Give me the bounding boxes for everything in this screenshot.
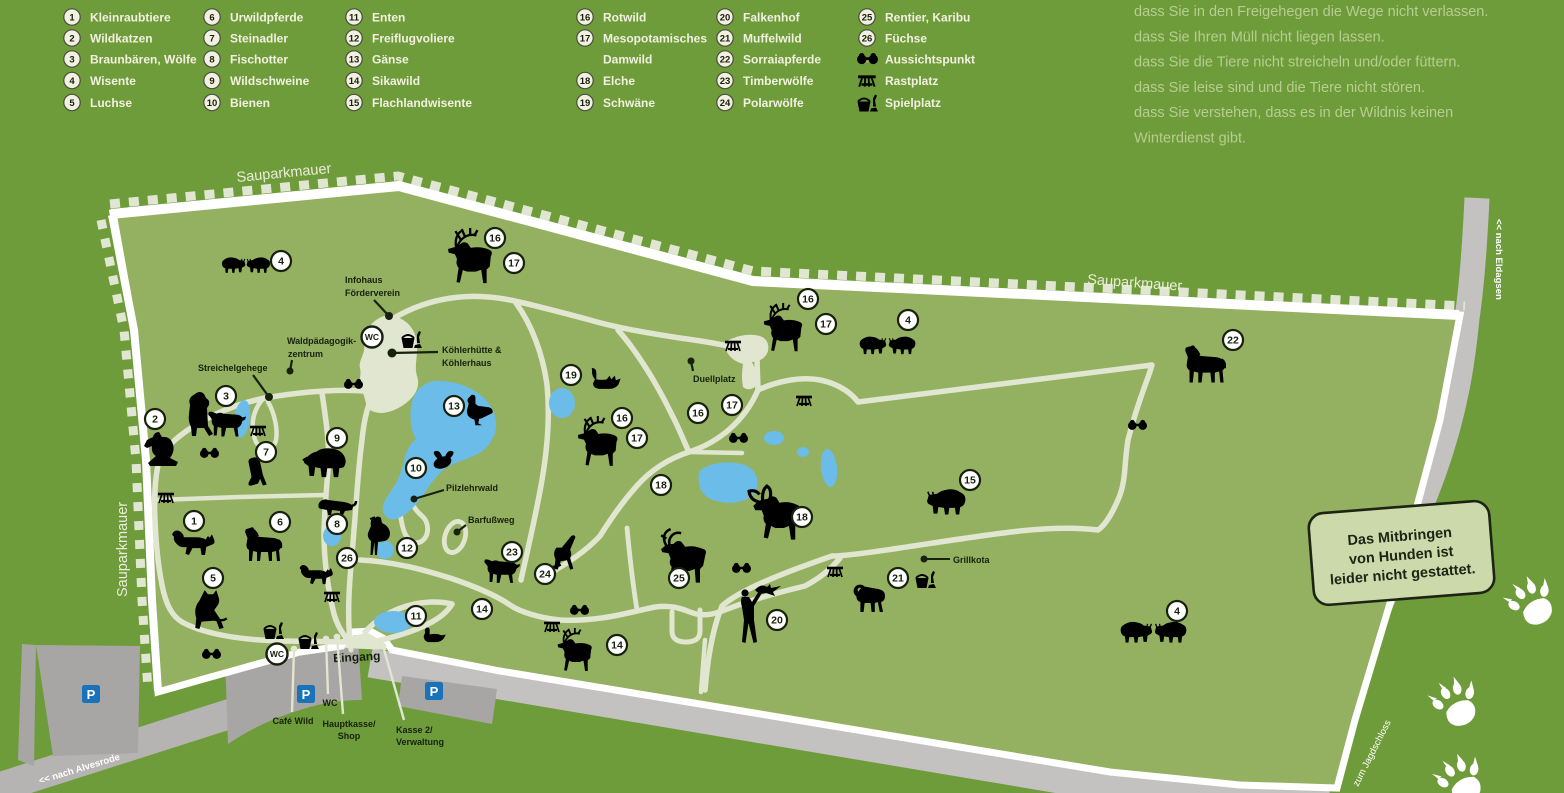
svg-text:Waldpädagogik-: Waldpädagogik- — [287, 336, 356, 346]
svg-text:Bienen: Bienen — [230, 96, 270, 110]
svg-text:15: 15 — [349, 98, 360, 109]
svg-text:4: 4 — [278, 256, 284, 268]
svg-text:dass Sie in den Freigehegen di: dass Sie in den Freigehegen die Wege nic… — [1134, 4, 1488, 20]
svg-text:Wildkatzen: Wildkatzen — [90, 32, 153, 46]
svg-text:P: P — [430, 684, 439, 699]
svg-text:Köhlerhaus: Köhlerhaus — [442, 358, 492, 368]
svg-text:Kasse 2/: Kasse 2/ — [396, 725, 433, 735]
svg-text:Grillkota: Grillkota — [953, 555, 991, 565]
svg-text:13: 13 — [349, 54, 360, 65]
svg-text:Polarwölfe: Polarwölfe — [743, 96, 804, 110]
svg-text:Luchse: Luchse — [90, 96, 132, 110]
svg-text:Schwäne: Schwäne — [603, 96, 655, 110]
svg-text:WC: WC — [270, 649, 284, 659]
svg-text:14: 14 — [349, 76, 360, 87]
svg-text:Verwaltung: Verwaltung — [396, 737, 444, 747]
svg-text:16: 16 — [580, 12, 591, 23]
svg-text:dass Sie verstehen, dass es in: dass Sie verstehen, dass es in der Wildn… — [1134, 105, 1453, 121]
svg-text:Förderverein: Förderverein — [345, 288, 400, 298]
svg-text:17: 17 — [508, 258, 520, 270]
svg-text:Steinadler: Steinadler — [230, 32, 288, 46]
svg-text:21: 21 — [720, 33, 731, 44]
svg-text:20: 20 — [720, 12, 731, 23]
svg-text:Wisente: Wisente — [90, 74, 136, 88]
svg-text:6: 6 — [277, 517, 283, 529]
svg-text:14: 14 — [476, 604, 488, 616]
svg-text:Rastplatz: Rastplatz — [885, 74, 938, 88]
svg-text:9: 9 — [209, 76, 214, 87]
svg-text:dass Sie Ihren Müll nicht lieg: dass Sie Ihren Müll nicht liegen lassen. — [1134, 29, 1385, 45]
svg-text:5: 5 — [210, 573, 216, 585]
svg-text:Sorraiapferde: Sorraiapferde — [743, 53, 821, 67]
svg-text:P: P — [87, 687, 96, 702]
svg-text:Damwild: Damwild — [603, 53, 652, 67]
svg-text:Streichelgehege: Streichelgehege — [198, 363, 268, 373]
svg-text:4: 4 — [905, 315, 911, 327]
svg-text:7: 7 — [263, 447, 269, 459]
svg-text:4: 4 — [1174, 606, 1180, 618]
svg-text:17: 17 — [820, 319, 832, 331]
svg-text:1: 1 — [69, 12, 75, 23]
svg-text:11: 11 — [349, 12, 360, 23]
svg-text:Winterdienst gibt.: Winterdienst gibt. — [1134, 131, 1246, 147]
svg-text:16: 16 — [489, 233, 501, 245]
svg-text:Spielplatz: Spielplatz — [885, 96, 941, 110]
svg-text:16: 16 — [616, 413, 628, 425]
svg-text:zentrum: zentrum — [288, 349, 323, 359]
svg-text:Sauparkmauer: Sauparkmauer — [115, 502, 131, 597]
svg-text:22: 22 — [720, 54, 731, 65]
svg-text:Gänse: Gänse — [372, 53, 409, 67]
svg-text:Köhlerhütte &: Köhlerhütte & — [442, 345, 502, 355]
svg-text:15: 15 — [964, 475, 976, 487]
svg-text:Enten: Enten — [372, 11, 405, 25]
svg-text:25: 25 — [673, 573, 685, 585]
svg-text:dass Sie die Tiere nicht strei: dass Sie die Tiere nicht streicheln und/… — [1134, 55, 1460, 71]
svg-text:Fischotter: Fischotter — [230, 53, 288, 67]
svg-text:Barfußweg: Barfußweg — [468, 515, 515, 525]
svg-text:16: 16 — [802, 294, 814, 306]
svg-text:Flachlandwisente: Flachlandwisente — [372, 96, 472, 110]
svg-text:22: 22 — [1227, 335, 1239, 347]
svg-text:24: 24 — [720, 98, 731, 109]
svg-text:13: 13 — [448, 401, 460, 413]
svg-text:10: 10 — [410, 463, 422, 475]
svg-text:Sikawild: Sikawild — [372, 74, 420, 88]
svg-text:9: 9 — [334, 433, 340, 445]
svg-text:26: 26 — [862, 33, 873, 44]
svg-text:Urwildpferde: Urwildpferde — [230, 11, 304, 25]
svg-text:2: 2 — [69, 33, 74, 44]
svg-text:WC: WC — [323, 698, 338, 708]
svg-text:Infohaus: Infohaus — [345, 275, 383, 285]
svg-text:dass Sie leise sind und die Ti: dass Sie leise sind und die Tiere nicht … — [1134, 80, 1425, 96]
svg-text:Kleinraubtiere: Kleinraubtiere — [90, 11, 171, 25]
svg-text:3: 3 — [223, 391, 229, 403]
svg-text:Café Wild: Café Wild — [273, 716, 314, 726]
svg-text:17: 17 — [580, 33, 591, 44]
svg-text:10: 10 — [207, 98, 218, 109]
svg-text:Falkenhof: Falkenhof — [743, 11, 801, 25]
svg-text:25: 25 — [862, 12, 873, 23]
svg-text:11: 11 — [410, 611, 421, 623]
svg-text:Muffelwild: Muffelwild — [743, 32, 802, 46]
svg-text:5: 5 — [69, 98, 75, 109]
svg-text:23: 23 — [506, 547, 518, 559]
svg-text:18: 18 — [655, 480, 667, 492]
svg-text:24: 24 — [539, 569, 551, 581]
svg-text:P: P — [302, 687, 311, 702]
svg-text:Füchse: Füchse — [885, 32, 927, 46]
svg-text:Mesopotamisches: Mesopotamisches — [603, 32, 707, 46]
svg-text:21: 21 — [892, 573, 904, 585]
svg-text:7: 7 — [209, 33, 214, 44]
svg-text:Elche: Elche — [603, 74, 635, 88]
svg-text:23: 23 — [720, 76, 731, 87]
svg-text:Wildschweine: Wildschweine — [230, 74, 310, 88]
svg-text:18: 18 — [580, 76, 591, 87]
svg-text:12: 12 — [349, 33, 360, 44]
svg-text:<< nach Eldagsen: << nach Eldagsen — [1493, 219, 1504, 300]
svg-text:14: 14 — [611, 640, 623, 652]
svg-text:6: 6 — [209, 12, 214, 23]
svg-text:18: 18 — [796, 512, 808, 524]
svg-text:8: 8 — [334, 519, 340, 531]
svg-text:Pilzlehrwald: Pilzlehrwald — [446, 483, 498, 493]
svg-text:17: 17 — [631, 433, 643, 445]
svg-text:Hauptkasse/: Hauptkasse/ — [322, 719, 376, 729]
svg-text:16: 16 — [692, 408, 704, 420]
svg-text:20: 20 — [771, 615, 783, 627]
svg-text:Freiflugvoliere: Freiflugvoliere — [372, 32, 455, 46]
svg-text:Rotwild: Rotwild — [603, 11, 646, 25]
svg-text:12: 12 — [401, 543, 413, 555]
svg-text:Aussichtspunkt: Aussichtspunkt — [885, 53, 975, 67]
svg-text:26: 26 — [341, 553, 353, 565]
svg-text:8: 8 — [209, 54, 214, 65]
svg-text:3: 3 — [69, 54, 74, 65]
svg-text:4: 4 — [69, 76, 75, 87]
svg-text:Duellplatz: Duellplatz — [693, 374, 736, 384]
svg-text:Shop: Shop — [338, 731, 361, 741]
svg-text:17: 17 — [726, 400, 738, 412]
svg-text:2: 2 — [152, 414, 158, 426]
svg-text:Timberwölfe: Timberwölfe — [743, 74, 814, 88]
svg-text:19: 19 — [580, 98, 591, 109]
svg-text:WC: WC — [365, 332, 379, 342]
svg-text:Braunbären, Wölfe: Braunbären, Wölfe — [90, 53, 197, 67]
svg-text:1: 1 — [191, 516, 197, 528]
svg-text:19: 19 — [565, 370, 577, 382]
svg-text:Rentier, Karibu: Rentier, Karibu — [885, 11, 970, 25]
